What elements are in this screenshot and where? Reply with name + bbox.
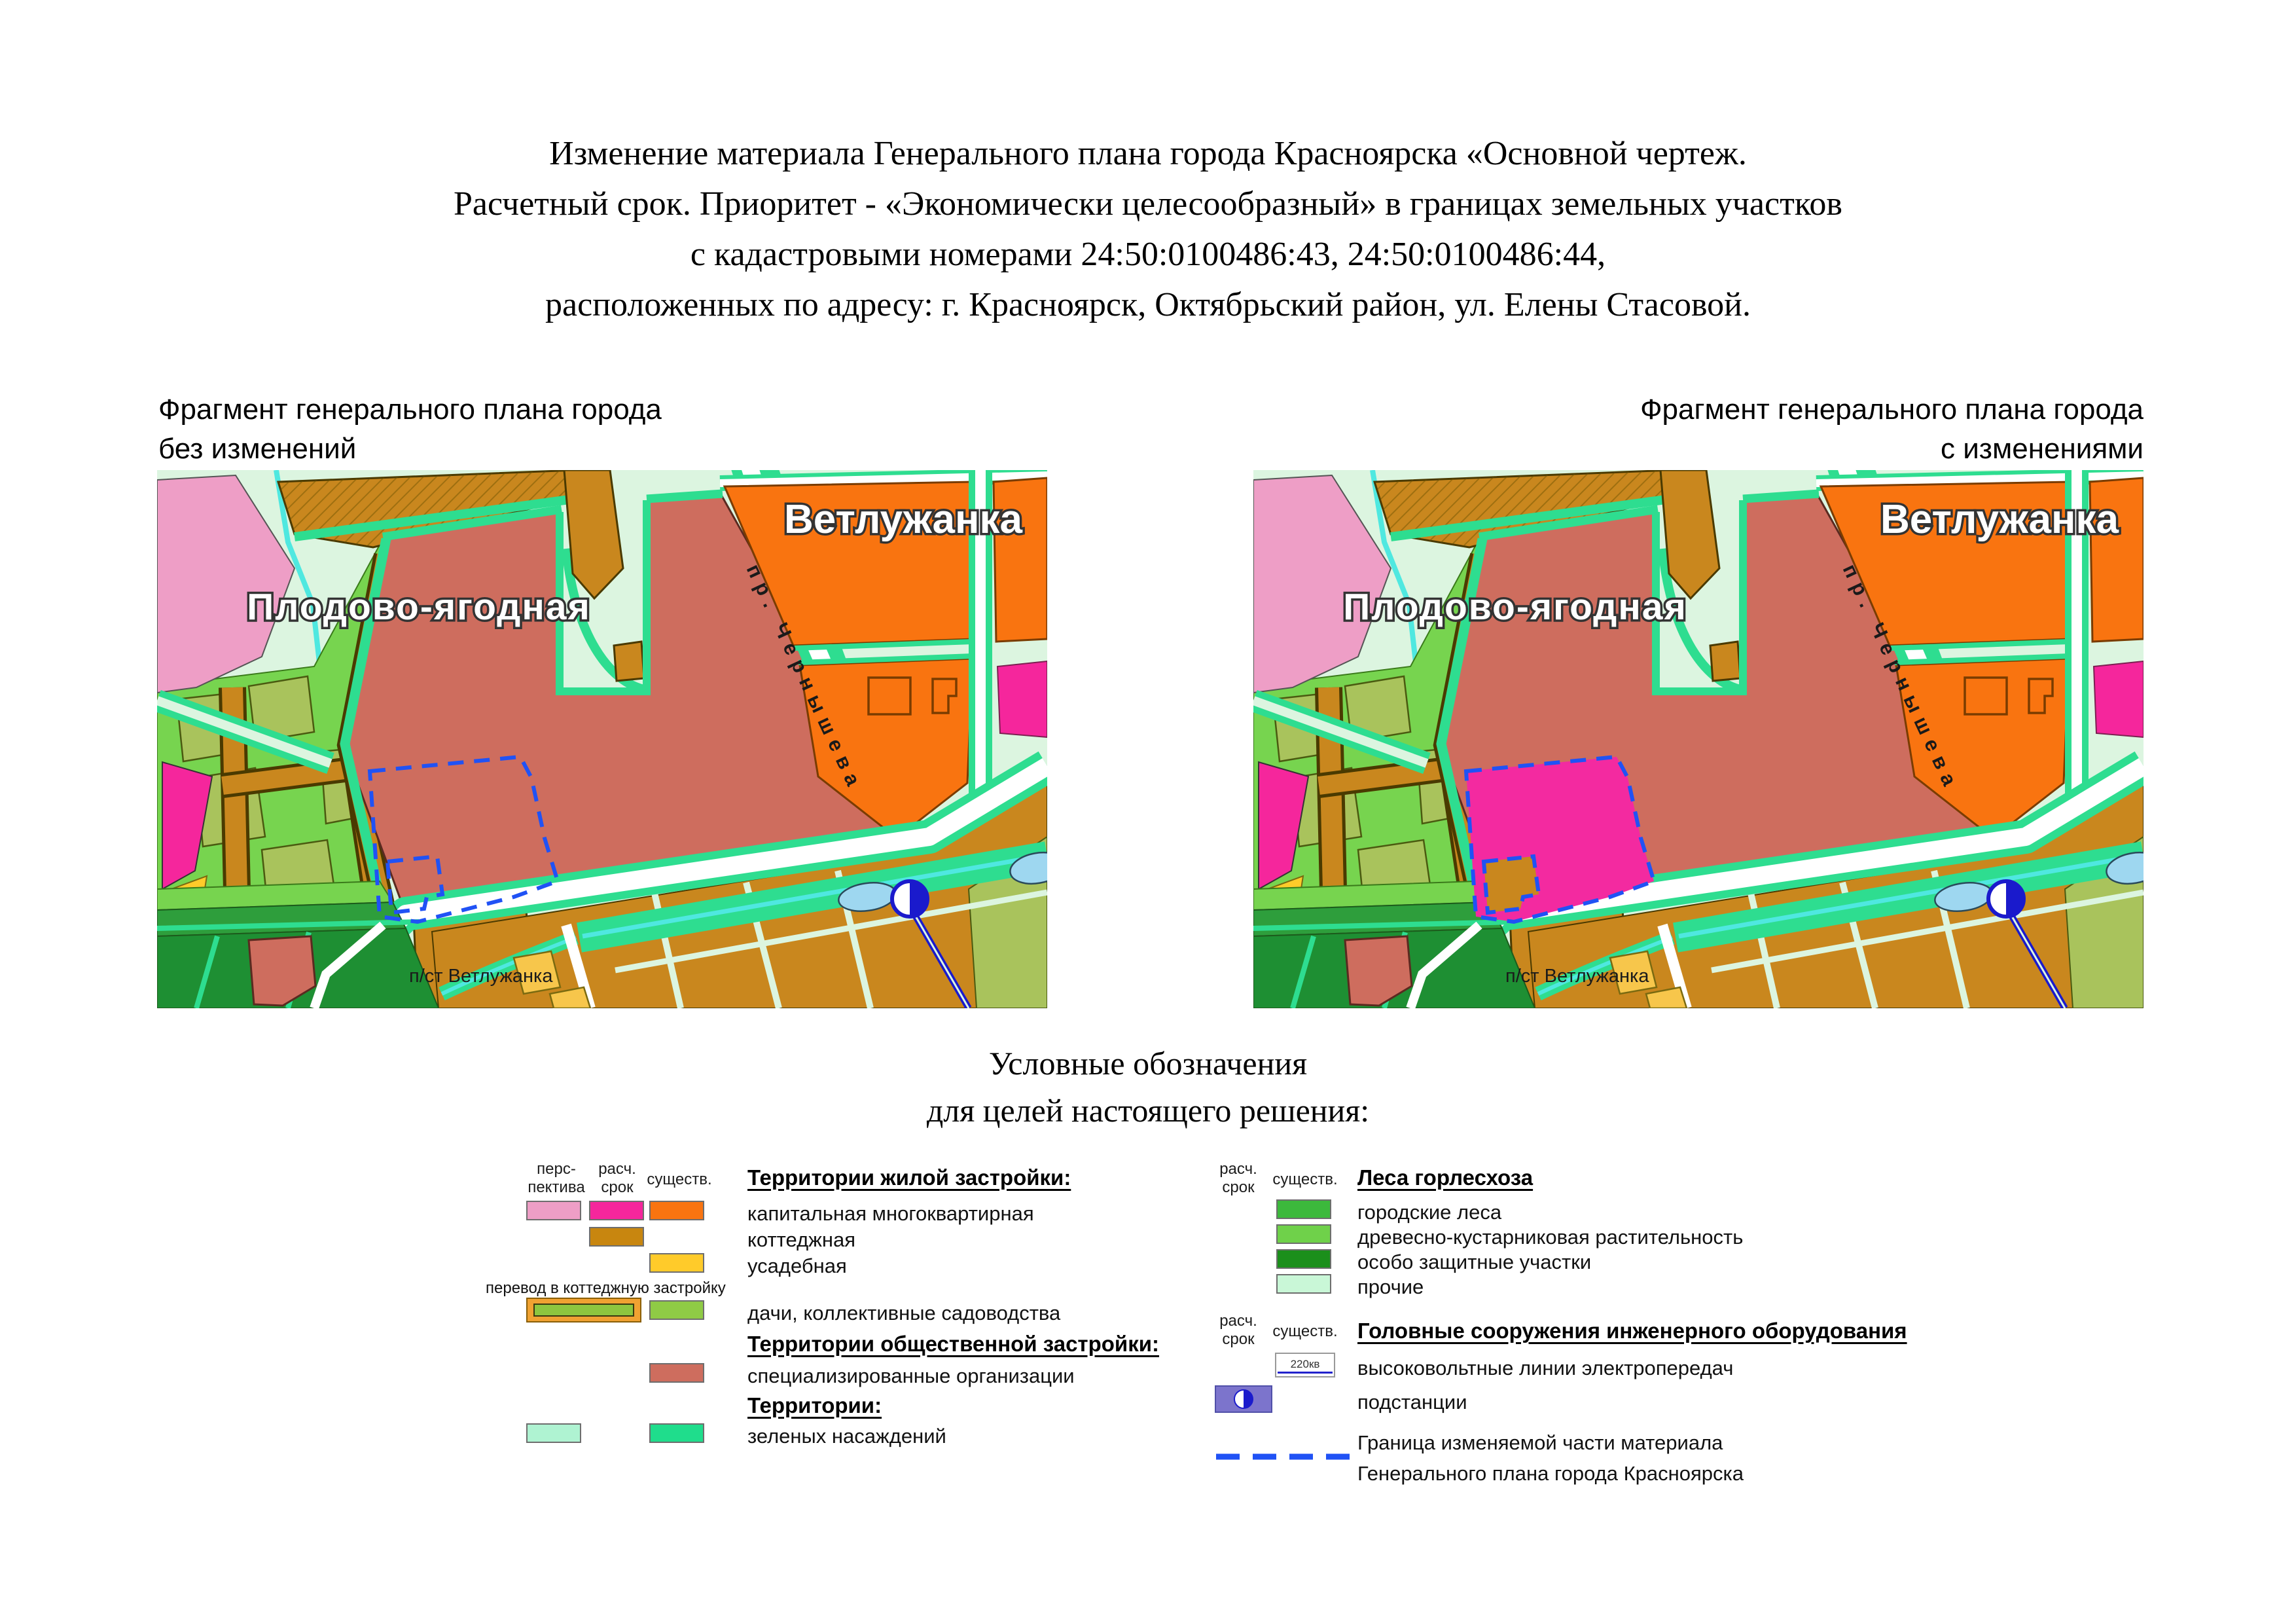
legend-item-cottage: коттеджная — [747, 1228, 855, 1252]
legend-swatch-springgreen — [649, 1423, 704, 1443]
legend-left-column: перс- пектива расч. срок существ. Террит… — [484, 1160, 1211, 1474]
legend-section-residential: Территории жилой застройки: — [747, 1165, 1071, 1190]
caption-map-before: Фрагмент генерального плана города без и… — [158, 390, 662, 469]
caption-line: с изменениями — [1554, 429, 2144, 469]
column-header-rasch: расч. срок — [1215, 1312, 1262, 1349]
legend-item-other: прочие — [1357, 1275, 1424, 1299]
legend-item-usadeb: усадебная — [747, 1254, 847, 1278]
legend-swatch-other-mint — [1276, 1274, 1331, 1294]
legend-section-territories: Территории: — [747, 1393, 882, 1418]
legend-swatch-city-forest — [1276, 1199, 1331, 1219]
legend-heading: Условные обозначения для целей настоящег… — [0, 1040, 2296, 1134]
legend-item-shrub: древесно-кустарниковая растительность — [1357, 1226, 1743, 1249]
legend-swatch-protected — [1276, 1249, 1331, 1269]
legend-item-city-forest: городские леса — [1357, 1201, 1501, 1224]
legend-swatch-cottage-brown — [589, 1227, 644, 1247]
boundary-dash-icon — [1215, 1452, 1354, 1460]
legend-section-forests: Леса горлесхоза — [1357, 1165, 1533, 1190]
legend-swatch-shrub — [1276, 1224, 1331, 1244]
legend-item-protected: особо защитные участки — [1357, 1250, 1591, 1274]
legend-item-substation: подстанции — [1357, 1391, 1467, 1414]
legend-heading-line: для целей настоящего решения: — [0, 1087, 2296, 1134]
caption-map-after: Фрагмент генерального плана города с изм… — [1554, 390, 2144, 469]
legend-item-green-spaces: зеленых насаждений — [747, 1425, 946, 1448]
power-line-stroke — [1278, 1372, 1333, 1374]
title-line: расположенных по адресу: г. Красноярск, … — [0, 280, 2296, 330]
document-page: Изменение материала Генерального плана г… — [0, 0, 2296, 1623]
legend-section-engineering: Головные сооружения инженерного оборудов… — [1357, 1319, 1907, 1343]
legend-item-power-lines: высоковольтные линии электропередач — [1357, 1357, 1733, 1380]
caption-line: Фрагмент генерального плана города — [158, 390, 662, 429]
legend-section-public: Территории общественной застройки: — [747, 1332, 1159, 1357]
map-without-changes — [157, 470, 1047, 1008]
map-with-changes — [1253, 470, 2144, 1008]
column-header-rasch: расч. срок — [592, 1160, 643, 1197]
caption-line: без изменений — [158, 429, 662, 469]
legend-swatch-perevod-inner — [533, 1304, 634, 1317]
title-line: Изменение материала Генерального плана г… — [0, 128, 2296, 179]
legend-heading-line: Условные обозначения — [0, 1040, 2296, 1087]
legend-item-dachi: дачи, коллективные садоводства — [747, 1302, 1060, 1325]
power-line-voltage: 220кв — [1276, 1358, 1334, 1371]
legend-item-boundary: Граница изменяемой части материала Генер… — [1357, 1427, 1744, 1489]
column-header-existing: существ. — [1272, 1171, 1338, 1189]
title-line: Расчетный срок. Приоритет - «Экономическ… — [0, 179, 2296, 229]
power-line-icon: 220кв — [1275, 1353, 1335, 1377]
legend-note-perevod: перевод в коттеджную застройку — [486, 1279, 726, 1298]
legend-swatch-perevod-combo — [526, 1298, 641, 1322]
legend-item-spec: специализированные организации — [747, 1364, 1075, 1388]
title-line: с кадастровыми номерами 24:50:0100486:43… — [0, 229, 2296, 280]
legend-swatch-perspective-pink — [526, 1201, 581, 1220]
legend-swatch-usadeb-yellow — [649, 1253, 704, 1273]
column-header-existing: существ. — [647, 1171, 712, 1189]
legend-item-capital: капитальная многоквартирная — [747, 1202, 1034, 1226]
legend-swatch-spec-salmon — [649, 1363, 704, 1383]
substation-legend-icon — [1215, 1385, 1272, 1413]
legend-swatch-existing-orange — [649, 1201, 704, 1220]
column-header-existing: существ. — [1272, 1322, 1338, 1341]
legend-swatch-dachi-green — [649, 1300, 704, 1320]
column-header-perspective: перс- пектива — [525, 1160, 588, 1197]
column-header-rasch: расч. срок — [1215, 1160, 1262, 1197]
legend-swatch-mint — [526, 1423, 581, 1443]
caption-line: Фрагмент генерального плана города — [1554, 390, 2144, 429]
legend-swatch-rasch-magenta — [589, 1201, 644, 1220]
document-title: Изменение материала Генерального плана г… — [0, 128, 2296, 330]
legend-right-column: расч. срок существ. Леса горлесхоза горо… — [1215, 1160, 2144, 1540]
